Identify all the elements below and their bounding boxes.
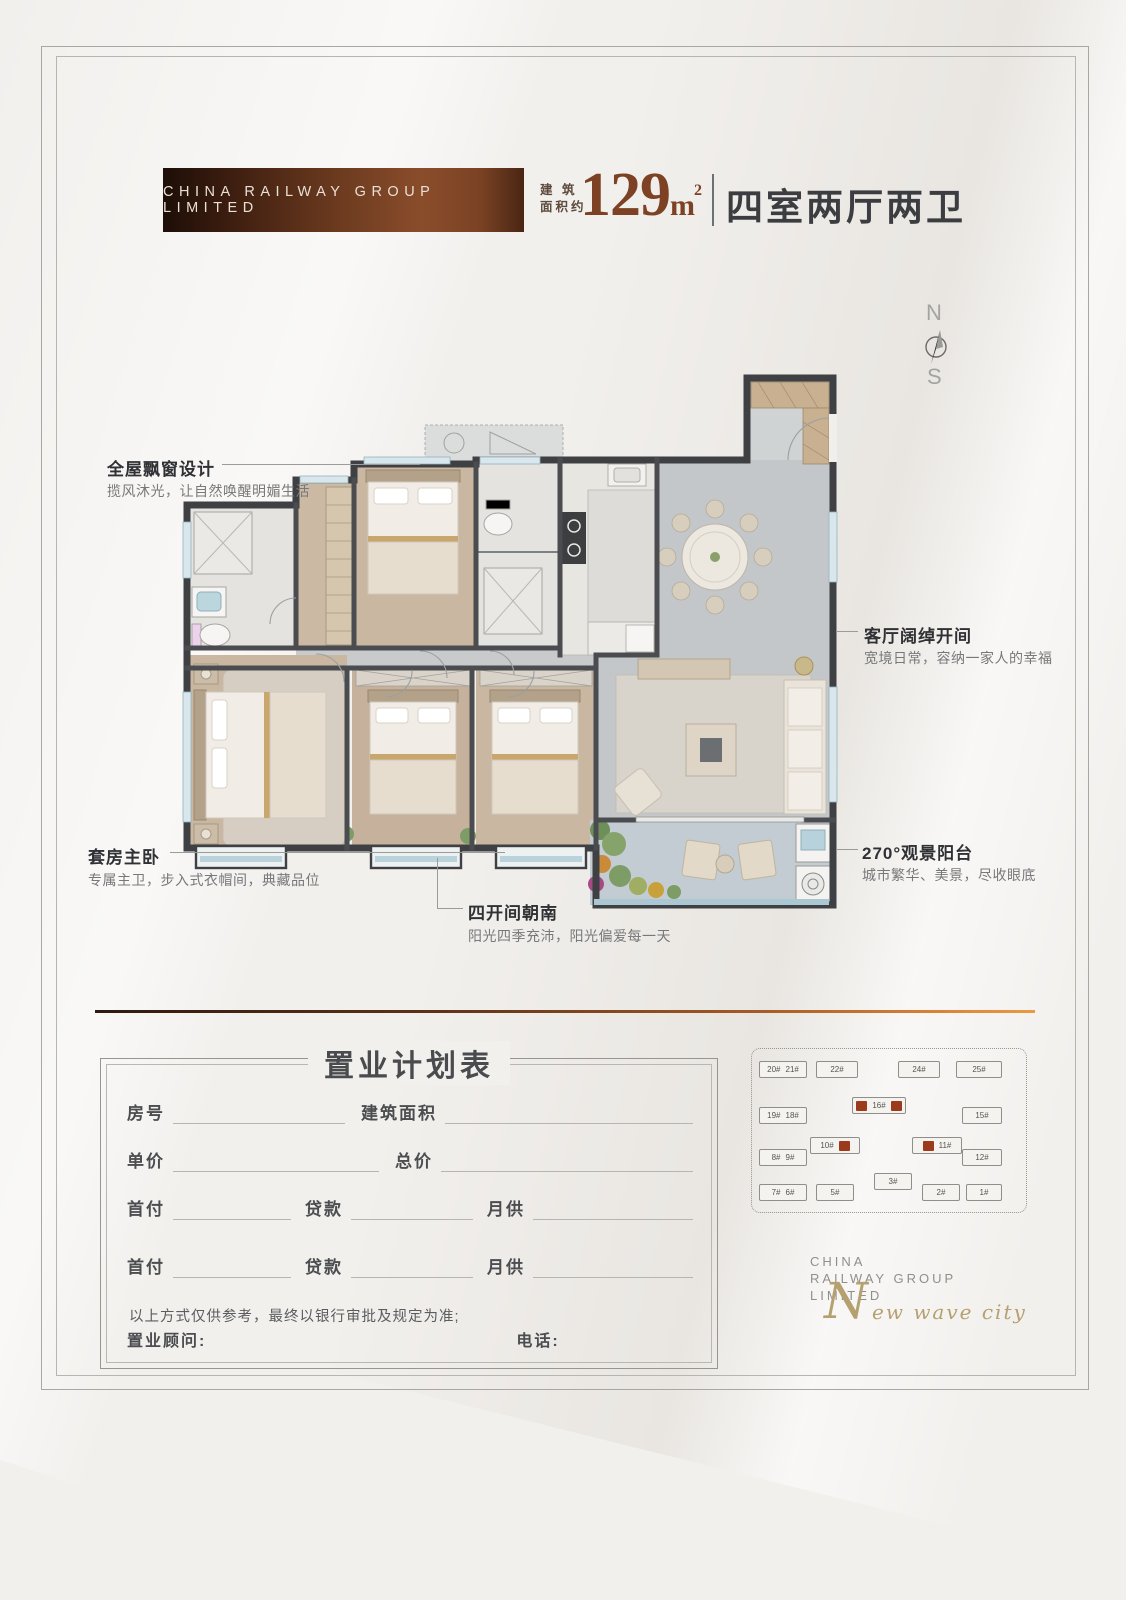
bed-top-bedroom (366, 470, 460, 594)
dining-table (658, 500, 772, 614)
building-15: 15# (962, 1107, 1002, 1124)
callout-balcony-desc: 城市繁华、美景，尽收眼底 (862, 865, 1036, 885)
building-11-red-block (923, 1141, 934, 1151)
field-blank-monthly-2 (533, 1257, 693, 1278)
brand-banner-text: CHINA RAILWAY GROUP LIMITED (163, 184, 524, 216)
field-label-downpayment-1: 首付 (127, 1195, 165, 1220)
form-row-1: 房号 建筑面积 (127, 1099, 693, 1124)
callout-living-desc: 宽境日常，容纳一家人的幸福 (864, 648, 1053, 668)
building-8-9: 8#9# (759, 1149, 807, 1166)
site-map: 20#21# 22# 24# 25# 16# 19#18# 15# 10# 11… (751, 1048, 1027, 1213)
callout-south-line-v (437, 858, 438, 908)
building-12: 12# (962, 1149, 1002, 1166)
field-blank-total-price (441, 1151, 693, 1172)
building-16-highlighted: 16# (852, 1097, 906, 1114)
field-blank-loan-1 (351, 1199, 473, 1220)
callout-south-desc: 阳光四季充沛，阳光偏爱每一天 (468, 926, 671, 946)
building-22: 22# (816, 1061, 858, 1078)
bed-bedroom3 (368, 690, 458, 814)
callout-south-title: 四开间朝南 (468, 899, 558, 924)
section-divider-line (95, 1010, 1035, 1013)
compass-needle-icon (918, 328, 954, 366)
form-row-consultant: 置业顾问: 电话: (127, 1327, 693, 1351)
callout-master-desc: 专属主卫，步入式衣帽间，典藏品位 (88, 870, 320, 890)
bed-master (194, 690, 326, 820)
compass-north-label: N (926, 300, 943, 326)
building-10-highlighted: 10# (810, 1137, 860, 1154)
footer-script-text: ew wave city (872, 1300, 1027, 1324)
field-label-loan-1: 贷款 (305, 1195, 343, 1220)
building-7-6: 7#6# (759, 1184, 807, 1201)
field-label-downpayment-2: 首付 (127, 1253, 165, 1278)
building-2: 2# (922, 1184, 960, 1201)
form-disclaimer: 以上方式仅供参考，最终以银行审批及规定为准; (129, 1305, 460, 1326)
building-16-red-wing-left (856, 1101, 867, 1111)
form-row-2: 单价 总价 (127, 1147, 693, 1172)
callout-balcony-line (836, 849, 858, 850)
header-divider (712, 174, 714, 226)
area-unit: m (670, 189, 694, 222)
floor-plan (168, 372, 860, 932)
field-label-unit-price: 单价 (127, 1147, 165, 1172)
building-16-red-wing-right (891, 1101, 902, 1111)
callout-balcony-title: 270°观景阳台 (862, 839, 973, 864)
callout-baywindow-desc: 揽风沐光，让自然唤醒明媚生活 (107, 481, 310, 501)
field-label-room-number: 房号 (127, 1099, 165, 1124)
bed-bedroom4 (490, 690, 580, 814)
building-3: 3# (874, 1173, 912, 1190)
building-10-red-block (839, 1141, 850, 1151)
field-blank-downpayment-1 (173, 1199, 291, 1220)
building-20-21: 20#21# (759, 1061, 807, 1078)
purchase-plan-title: 置业计划表 (308, 1041, 510, 1085)
callout-baywindow-line (222, 464, 420, 465)
area-value: 129m2 (580, 160, 701, 237)
callout-living-line (836, 631, 858, 632)
field-blank-loan-2 (351, 1257, 473, 1278)
consultant-label: 置业顾问: (127, 1327, 206, 1351)
building-25: 25# (956, 1061, 1002, 1078)
field-blank-monthly-1 (533, 1199, 693, 1220)
field-label-total-price: 总价 (395, 1147, 433, 1172)
purchase-plan-form: 置业计划表 房号 建筑面积 单价 总价 首付 贷款 月供 首付 贷款 月供 以上… (100, 1058, 718, 1369)
footer-brand-line1: CHINA (810, 1253, 956, 1270)
compass-south-label: S (927, 364, 943, 390)
layout-label: 四室两厅两卫 (726, 177, 966, 231)
field-blank-unit-price (173, 1151, 379, 1172)
building-19-18: 19#18# (759, 1107, 807, 1124)
brand-banner: CHINA RAILWAY GROUP LIMITED (163, 168, 524, 232)
callout-master-line (170, 852, 505, 853)
field-label-monthly-1: 月供 (487, 1195, 525, 1220)
phone-label: 电话: (516, 1327, 559, 1351)
building-24: 24# (898, 1061, 940, 1078)
building-5: 5# (816, 1184, 854, 1201)
purchase-plan-title-wrap: 置业计划表 (101, 1041, 717, 1085)
area-unit-exponent: 2 (694, 182, 701, 199)
callout-south-line-h (437, 908, 463, 909)
sofa (784, 680, 826, 814)
field-label-loan-2: 贷款 (305, 1253, 343, 1278)
field-blank-floor-area (445, 1103, 693, 1124)
footer-script-initial: N (824, 1272, 868, 1330)
callout-master-title: 套房主卧 (88, 843, 160, 868)
form-row-3: 首付 贷款 月供 (127, 1195, 693, 1220)
callout-living-title: 客厅阔绰开间 (864, 622, 972, 647)
field-blank-downpayment-2 (173, 1257, 291, 1278)
field-label-monthly-2: 月供 (487, 1253, 525, 1278)
field-label-floor-area: 建筑面积 (361, 1099, 437, 1124)
field-blank-room-number (173, 1103, 345, 1124)
building-1: 1# (966, 1184, 1002, 1201)
callout-baywindow-title: 全屋飘窗设计 (107, 455, 215, 480)
form-row-4: 首付 贷款 月供 (127, 1253, 693, 1278)
building-11-highlighted: 11# (912, 1137, 962, 1154)
